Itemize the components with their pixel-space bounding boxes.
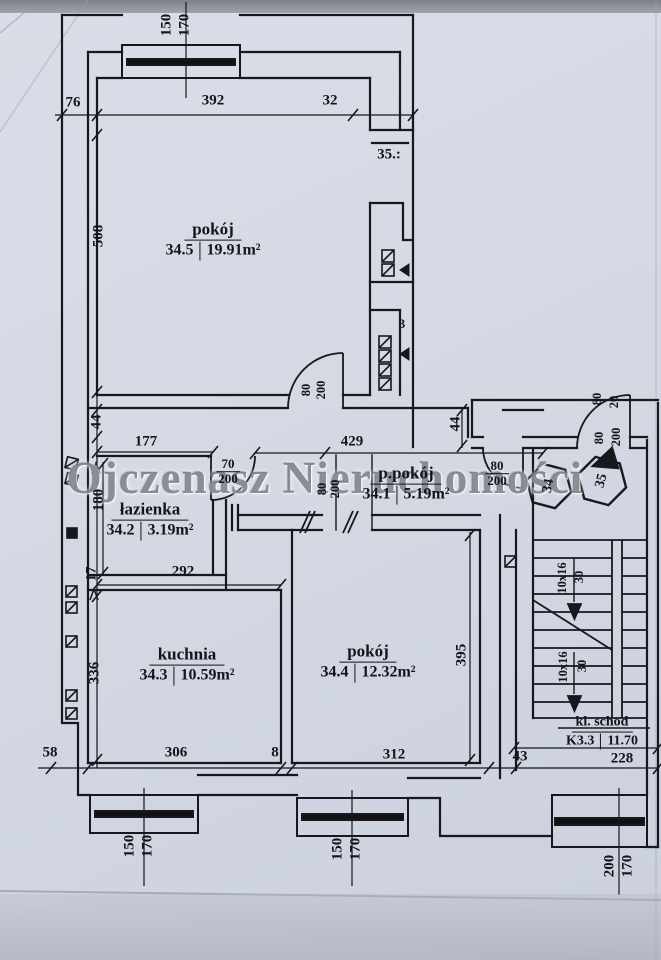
room-name: kl. schod: [572, 715, 633, 733]
room-number: 34.2: [106, 522, 141, 540]
vent-arrows: [90, 264, 409, 600]
room-number: 34.1: [362, 486, 397, 504]
door-width: 80: [491, 459, 504, 473]
room-number: K3.3: [566, 733, 601, 749]
dim-bathdoor-70-200: 70 200: [216, 457, 240, 487]
dim-top-76: 76: [66, 96, 81, 111]
dim-bottom-58: 58: [43, 746, 58, 761]
dim-window-stair-200: 200: [603, 855, 618, 878]
room-number: 34.4: [320, 664, 355, 682]
dim-door345-200: 200: [315, 381, 328, 400]
dim-top-32: 32: [323, 94, 338, 109]
dim-bottom-312: 312: [383, 748, 406, 763]
room-label-staircase: kl. schod K3.311.70: [566, 713, 638, 750]
dim-window-stair-170: 170: [621, 855, 636, 878]
dim-halldoor-80-200: 80 200: [485, 459, 509, 489]
dim-window-room-150: 150: [331, 838, 346, 861]
dim-left-44: 44: [90, 415, 105, 430]
dim-window-kitchen-150: 150: [123, 835, 138, 858]
shaft-label-35: 35.:: [377, 148, 401, 163]
room-area: 11.70: [601, 733, 638, 749]
dim-entrydoor-200: 200: [610, 428, 623, 447]
dim-opening-80: 80: [316, 483, 329, 496]
room-label-343: kuchnia 34.310.59m²: [139, 645, 234, 686]
dim-window-kitchen-170: 170: [141, 835, 156, 858]
room-label-345: pokój 34.519.91m²: [165, 220, 260, 261]
dim-hall-177: 177: [135, 435, 158, 450]
dim-bottom-306: 306: [165, 746, 188, 761]
room-name: p.pokój: [370, 464, 441, 485]
dim-right-44: 44: [449, 417, 464, 432]
room-name: pokój: [339, 642, 397, 663]
paper-bottom-fold: [0, 894, 661, 960]
room-name: łazienka: [112, 500, 188, 521]
scanned-floorplan-page: Ojczenasz Nieruchomości pokój 34.519.91m…: [0, 0, 661, 960]
dim-left-17: 17: [85, 567, 100, 582]
dim-hall-429: 429: [341, 435, 364, 450]
room-label-342: łazienka 34.23.19m²: [106, 500, 193, 541]
stairs-flight2-10x16: 10x16: [557, 651, 570, 682]
room-label-341: p.pokój 34.15.19m²: [362, 464, 449, 505]
dim-bottom-228: 228: [611, 752, 634, 767]
room-number: 34.3: [139, 667, 174, 685]
room-label-344: pokój 34.412.32m²: [320, 642, 415, 683]
dim-entry-80: 80: [591, 393, 604, 406]
room-area: 12.32m²: [355, 664, 415, 682]
room-area: 10.59m²: [174, 667, 234, 685]
dim-left-508: 508: [92, 225, 107, 248]
stairs-flight1-30: 30: [573, 571, 586, 584]
dim-left-336: 336: [88, 662, 103, 685]
room-area: 3.19m²: [141, 522, 193, 540]
dim-left-180: 180: [92, 489, 107, 512]
dim-entrydoor-80: 80: [593, 432, 606, 445]
dim-entry-20: 20: [608, 396, 621, 409]
room-area: 5.19m²: [397, 486, 449, 504]
stairs-flight2-30: 30: [576, 660, 589, 673]
stairs-flight1-10x16: 10x16: [556, 562, 569, 593]
shaft-label-3: 3: [399, 318, 405, 331]
dim-bottom-8: 8: [271, 746, 279, 761]
room-name: pokój: [184, 220, 242, 241]
dim-mid-292: 292: [172, 565, 195, 580]
room-area: 19.91m²: [200, 242, 260, 260]
dim-right-395: 395: [455, 644, 470, 667]
dim-window-top-150: 150: [160, 14, 175, 37]
dim-window-top-170: 170: [178, 14, 193, 37]
dim-top-392: 392: [202, 94, 225, 109]
dim-window-room-170: 170: [349, 838, 364, 861]
dim-door345-80: 80: [300, 384, 313, 397]
room-name: kuchnia: [150, 645, 225, 666]
dim-bottom-43: 43: [513, 750, 528, 765]
door-height: 200: [216, 472, 240, 487]
door-width: 70: [222, 457, 235, 471]
dim-opening-200: 200: [329, 480, 342, 499]
apartment-number-badge: 34: [540, 478, 558, 495]
door-height: 200: [485, 474, 509, 489]
room-number: 34.5: [165, 242, 200, 260]
